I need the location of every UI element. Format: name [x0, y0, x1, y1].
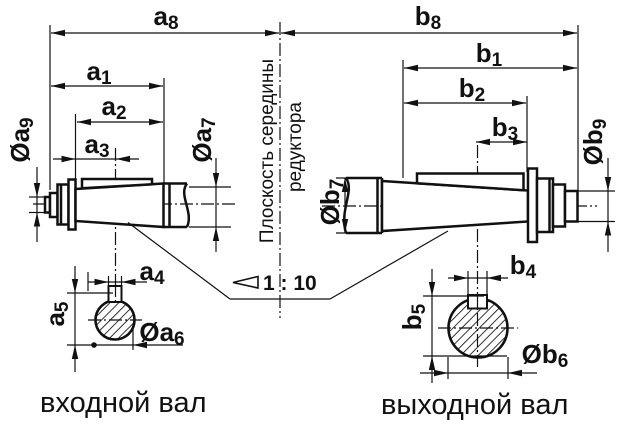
taper-symbol-icon	[233, 277, 258, 289]
output-shaft-section	[449, 295, 508, 358]
input-shaft-caption: входной вал	[40, 387, 207, 419]
dim-label-a1: a1	[86, 56, 111, 89]
dim-label-a7: Øa7	[187, 117, 220, 162]
center-plane-caption: Плоскость середины редуктора	[257, 59, 306, 243]
break-line-left-shaft	[184, 184, 189, 228]
dim-label-a5: a5	[40, 301, 73, 326]
dim-label-a6: Øa6	[139, 317, 184, 350]
technical-drawing: 1 : 10 a8 a1 a2 a3 a4 Øa6 Øa9 Øa7 a5 b8 …	[0, 0, 629, 426]
dim-label-b2: b2	[459, 73, 485, 106]
dim-label-a2: a2	[101, 91, 126, 124]
dim-label-b9: Øb9	[578, 119, 611, 166]
taper-ratio-label: 1 : 10	[263, 272, 317, 295]
dim-label-b7: Øb7	[315, 179, 348, 226]
output-shaft-outline	[344, 169, 577, 243]
drawing-canvas: 1 : 10 a8 a1 a2 a3 a4 Øa6 Øa9 Øa7 a5 b8 …	[0, 0, 629, 426]
dim-label-b5: b5	[397, 303, 430, 330]
dim-label-a3: a3	[84, 129, 109, 162]
dim-label-a8: a8	[153, 1, 178, 34]
dim-label-b3: b3	[492, 112, 518, 145]
dimension-dot	[91, 342, 97, 348]
dim-label-a9: Øa9	[5, 117, 38, 162]
dim-label-a4: a4	[139, 256, 164, 289]
taper-callout: 1 : 10	[128, 223, 448, 300]
center-plane-line1: Плоскость середины	[257, 59, 278, 243]
center-plane-line2: редуктора	[285, 102, 306, 192]
shaft-captions: входной вал выходной вал	[40, 387, 568, 421]
dim-label-b6: Øb6	[522, 339, 569, 372]
dim-label-b1: b1	[476, 38, 503, 71]
input-shaft-section	[96, 284, 135, 340]
output-shaft-caption: выходной вал	[381, 389, 568, 421]
dim-label-b4: b4	[510, 250, 537, 283]
dim-label-b8: b8	[415, 1, 441, 34]
